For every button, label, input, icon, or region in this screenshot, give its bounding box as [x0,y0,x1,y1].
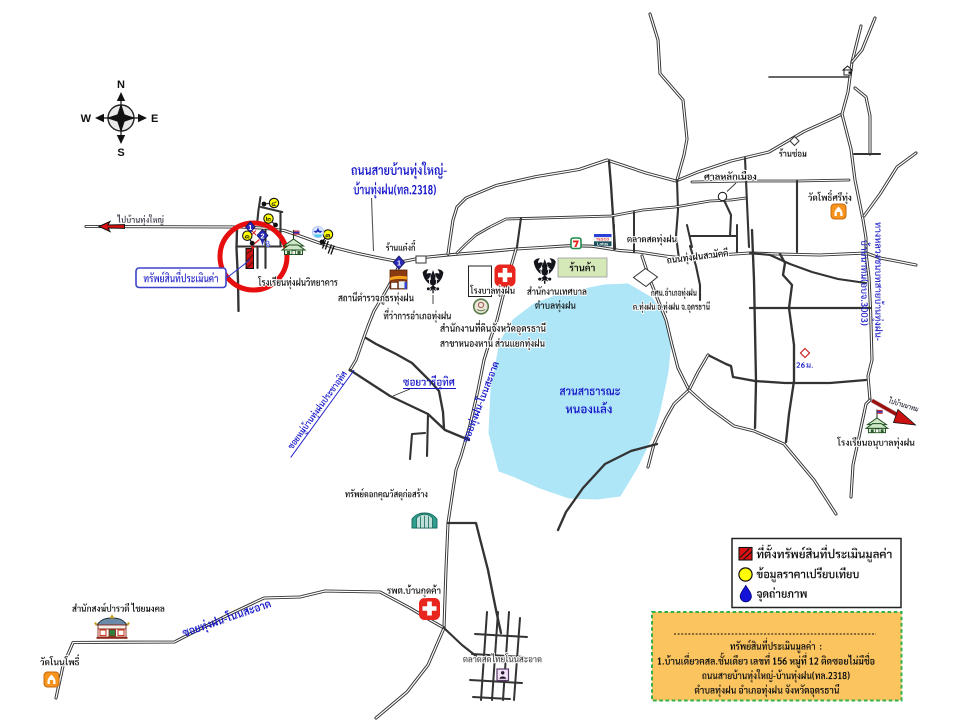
svg-text:Lotus: Lotus [597,241,609,246]
svg-text:N: N [117,79,125,91]
svg-text:1: 1 [248,225,252,232]
svg-text:1: 1 [397,258,401,267]
svg-text:2: 2 [261,231,265,240]
svg-text:E: E [151,113,158,125]
svg-text:W: W [81,113,92,125]
svg-text:S: S [117,147,124,159]
